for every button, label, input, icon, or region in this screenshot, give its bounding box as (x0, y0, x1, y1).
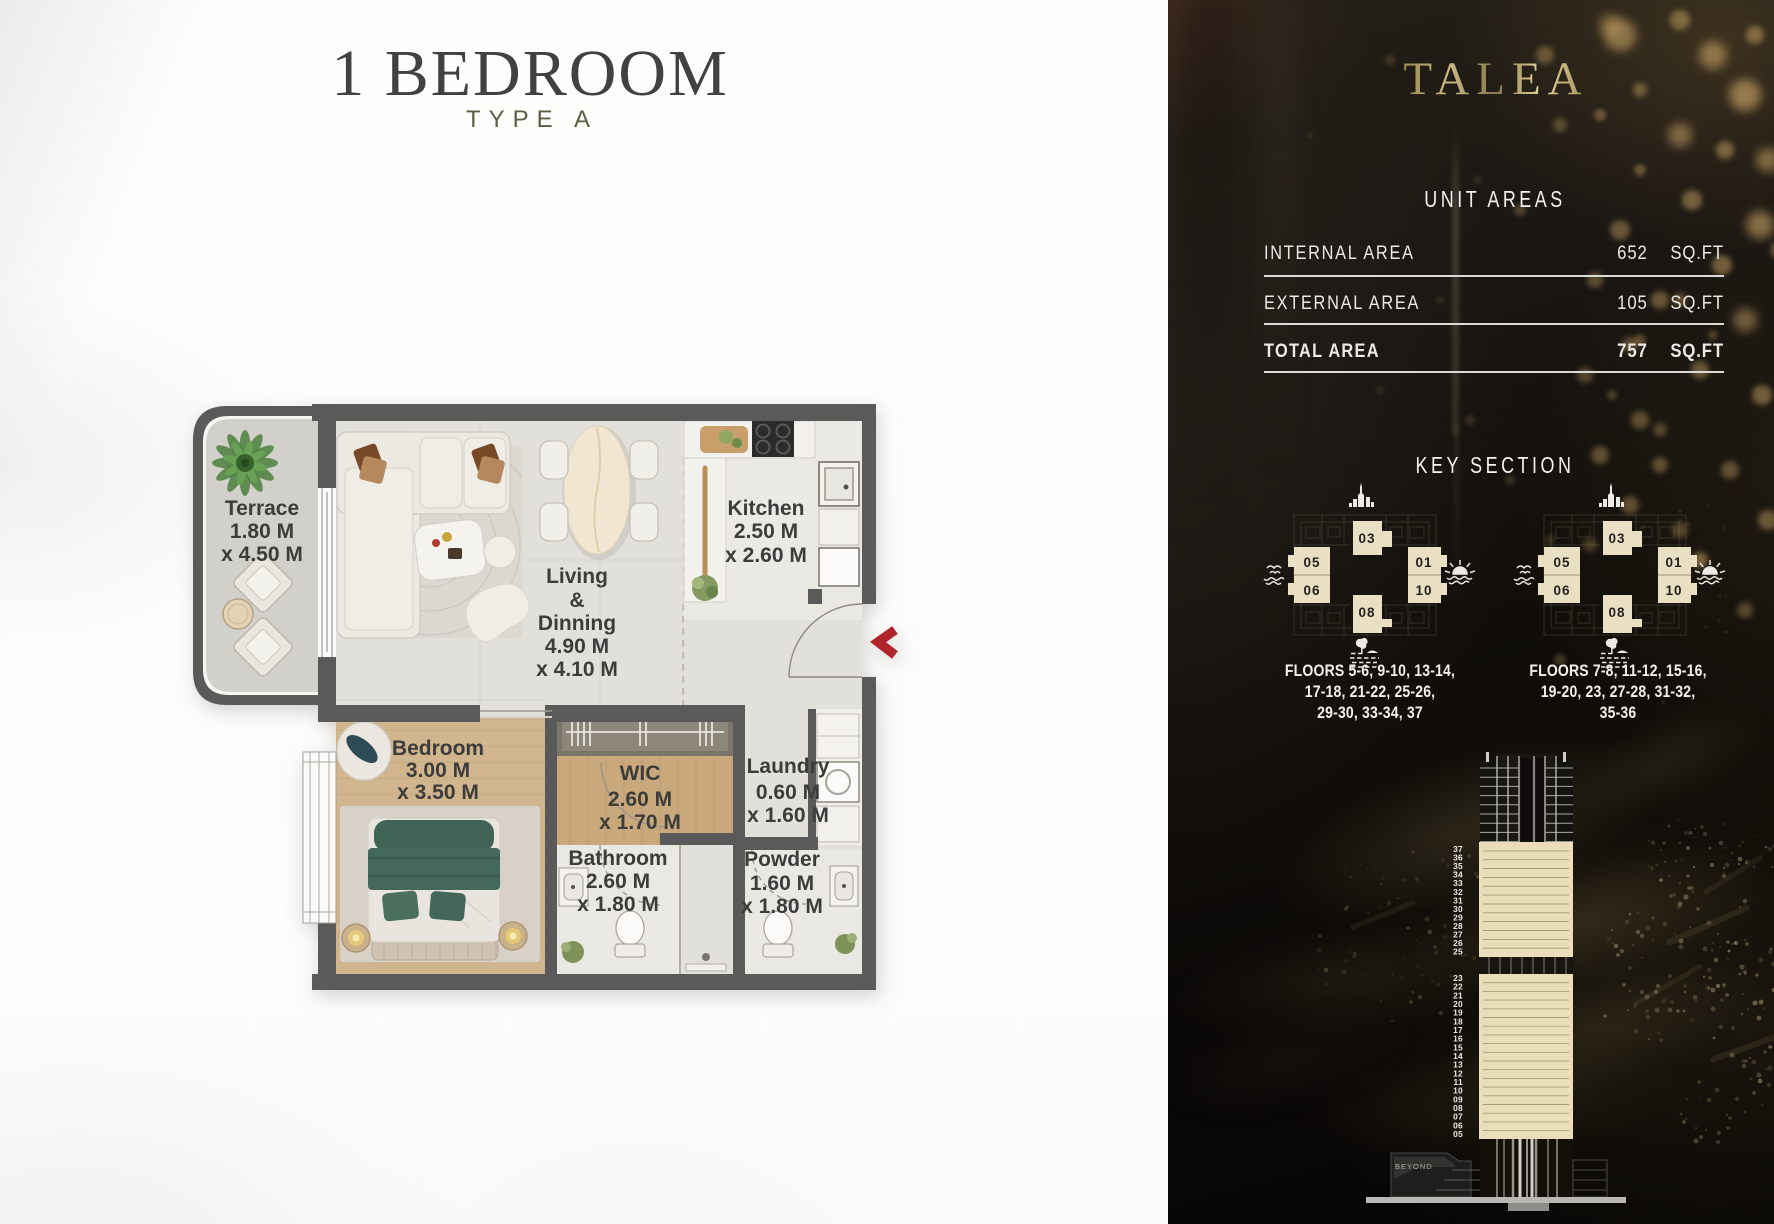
svg-text:1.60 M: 1.60 M (750, 872, 814, 895)
svg-text:x 2.60 M: x 2.60 M (725, 544, 807, 567)
svg-text:x 3.50 M: x 3.50 M (397, 781, 479, 804)
svg-text:2.60 M: 2.60 M (608, 788, 672, 811)
svg-text:Bathroom: Bathroom (568, 847, 667, 870)
svg-text:Living: Living (546, 565, 608, 588)
svg-text:WIC: WIC (620, 762, 661, 785)
svg-text:3.00 M: 3.00 M (406, 759, 470, 782)
svg-text:25: 25 (1453, 947, 1463, 957)
svg-text:x 1.80 M: x 1.80 M (577, 893, 659, 916)
svg-text:Kitchen: Kitchen (727, 497, 804, 520)
svg-text:x 1.60 M: x 1.60 M (747, 804, 829, 827)
svg-text:1.80 M: 1.80 M (230, 520, 294, 543)
svg-text:x 1.70 M: x 1.70 M (599, 811, 681, 834)
svg-text:x 4.50 M: x 4.50 M (221, 543, 303, 566)
svg-text:2.60 M: 2.60 M (586, 870, 650, 893)
svg-text:&: & (569, 589, 584, 612)
svg-text:Terrace: Terrace (225, 497, 299, 520)
svg-text:Dinning: Dinning (538, 612, 616, 635)
svg-text:4.90 M: 4.90 M (545, 635, 609, 658)
svg-text:x 1.80 M: x 1.80 M (741, 895, 823, 918)
svg-text:0.60 M: 0.60 M (756, 781, 820, 804)
svg-text:2.50 M: 2.50 M (734, 520, 798, 543)
svg-text:Laundry: Laundry (747, 755, 830, 778)
svg-text:Bedroom: Bedroom (392, 737, 484, 760)
svg-text:BEYOND: BEYOND (1395, 1162, 1433, 1171)
svg-text:05: 05 (1453, 1129, 1463, 1139)
svg-text:x 4.10 M: x 4.10 M (536, 658, 618, 681)
svg-text:Powder: Powder (744, 848, 820, 871)
